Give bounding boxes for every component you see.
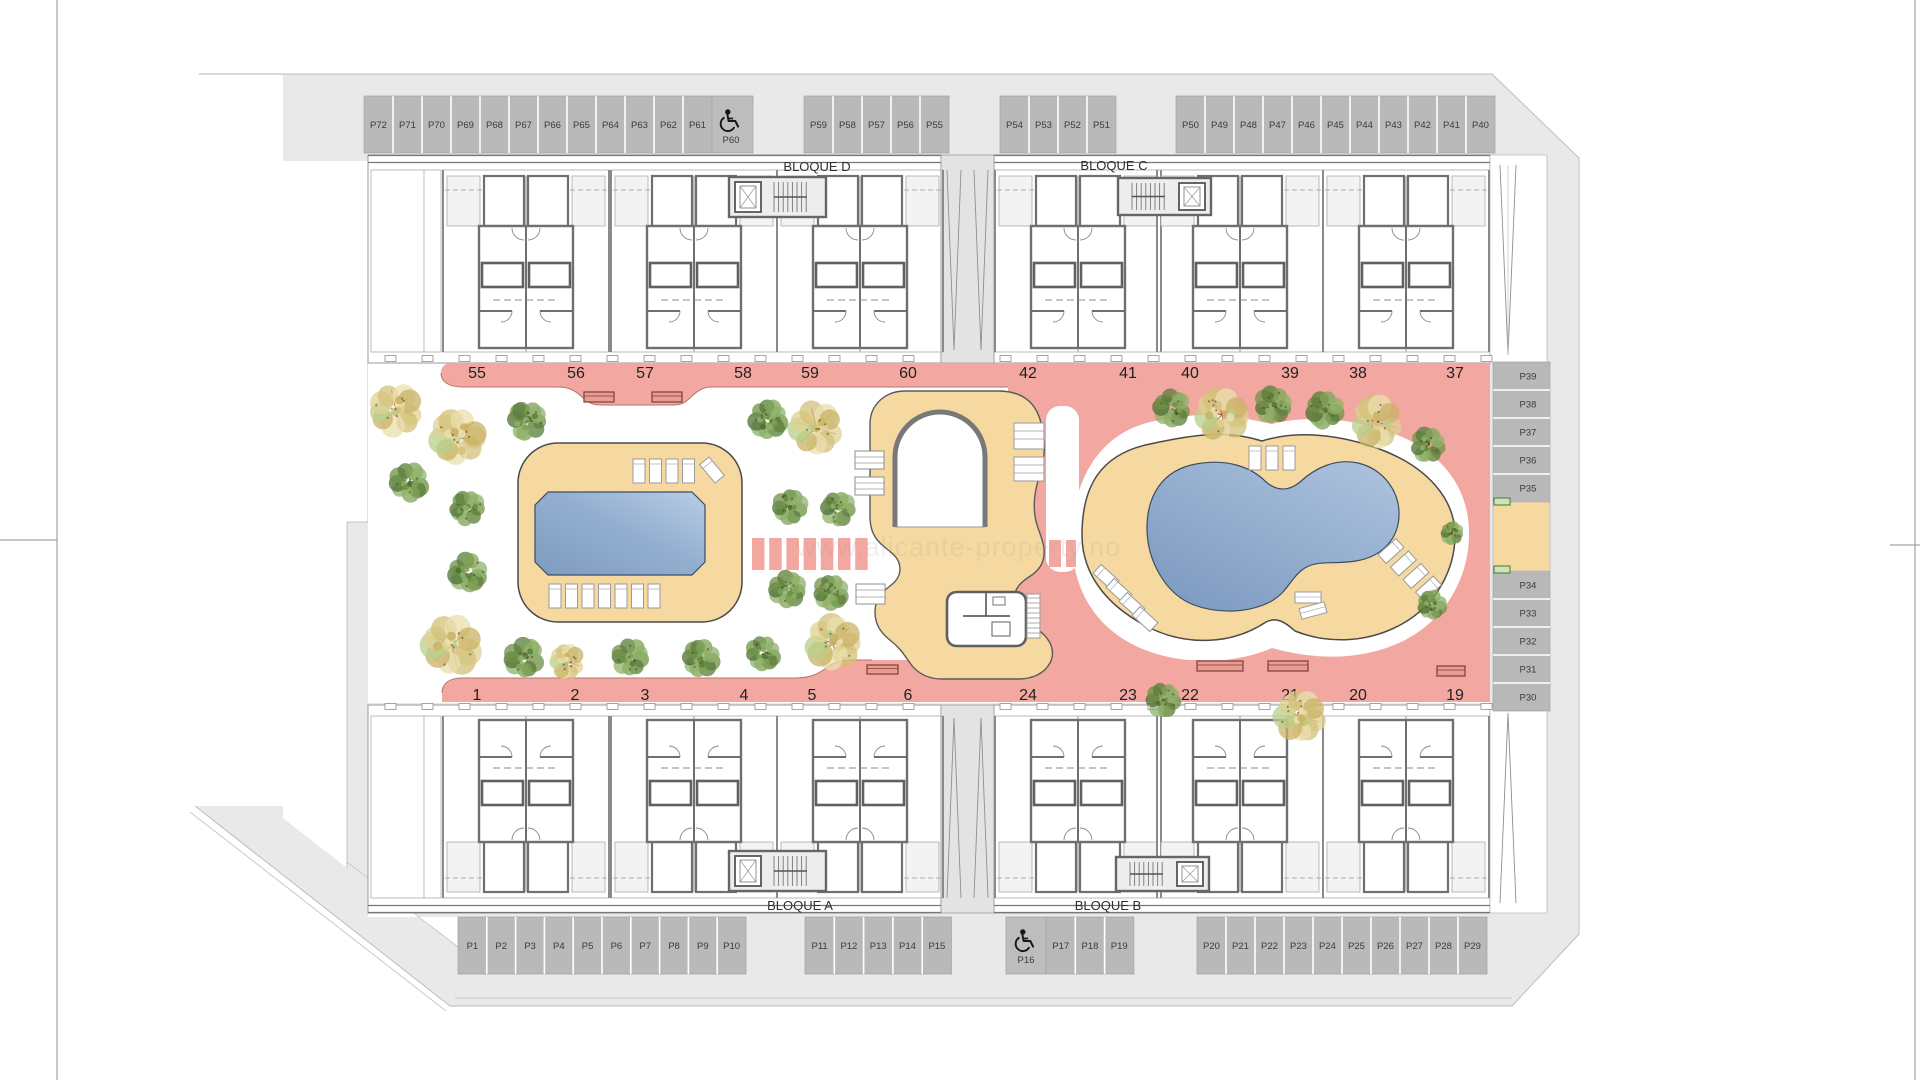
svg-text:P35: P35	[1520, 484, 1537, 495]
svg-text:P13: P13	[870, 941, 887, 952]
svg-text:P1: P1	[467, 941, 479, 952]
svg-text:P48: P48	[1240, 120, 1257, 131]
svg-text:BLOQUE A: BLOQUE A	[767, 898, 833, 913]
svg-text:20: 20	[1349, 687, 1367, 704]
svg-text:P17: P17	[1052, 941, 1069, 952]
svg-text:P69: P69	[457, 120, 474, 131]
svg-text:P51: P51	[1093, 120, 1110, 131]
svg-text:37: 37	[1446, 365, 1464, 382]
svg-text:P58: P58	[839, 120, 856, 131]
svg-text:P9: P9	[697, 941, 709, 952]
svg-text:24: 24	[1019, 687, 1037, 704]
svg-text:P61: P61	[689, 120, 706, 131]
svg-text:P50: P50	[1182, 120, 1199, 131]
svg-text:P33: P33	[1520, 609, 1537, 620]
svg-text:57: 57	[636, 365, 654, 382]
svg-text:P8: P8	[668, 941, 680, 952]
svg-text:P2: P2	[495, 941, 507, 952]
svg-text:P54: P54	[1006, 120, 1023, 131]
svg-text:P19: P19	[1111, 941, 1128, 952]
svg-text:42: 42	[1019, 365, 1037, 382]
svg-text:P62: P62	[660, 120, 677, 131]
svg-text:P49: P49	[1211, 120, 1228, 131]
svg-text:P64: P64	[602, 120, 619, 131]
svg-text:P68: P68	[486, 120, 503, 131]
svg-text:P29: P29	[1464, 941, 1481, 952]
svg-text:1: 1	[473, 687, 482, 704]
svg-text:P36: P36	[1520, 456, 1537, 467]
svg-text:P31: P31	[1520, 665, 1537, 676]
svg-text:60: 60	[899, 365, 917, 382]
svg-text:P70: P70	[428, 120, 445, 131]
svg-text:BLOQUE C: BLOQUE C	[1080, 158, 1147, 173]
svg-text:www.alicante-property.no: www.alicante-property.no	[795, 532, 1121, 562]
svg-text:P15: P15	[928, 941, 945, 952]
svg-text:38: 38	[1349, 365, 1367, 382]
svg-text:P56: P56	[897, 120, 914, 131]
svg-text:P22: P22	[1261, 941, 1278, 952]
svg-text:P26: P26	[1377, 941, 1394, 952]
svg-text:23: 23	[1119, 687, 1137, 704]
svg-text:P6: P6	[611, 941, 623, 952]
svg-text:P27: P27	[1406, 941, 1423, 952]
svg-text:P4: P4	[553, 941, 565, 952]
svg-text:P14: P14	[899, 941, 916, 952]
svg-text:P23: P23	[1290, 941, 1307, 952]
svg-text:P12: P12	[840, 941, 857, 952]
svg-text:P72: P72	[370, 120, 387, 131]
svg-text:P71: P71	[399, 120, 416, 131]
svg-text:22: 22	[1181, 687, 1199, 704]
svg-text:P38: P38	[1520, 400, 1537, 411]
svg-text:P37: P37	[1520, 428, 1537, 439]
svg-text:BLOQUE D: BLOQUE D	[783, 159, 850, 174]
svg-text:55: 55	[468, 365, 486, 382]
svg-text:2: 2	[571, 687, 580, 704]
svg-text:P41: P41	[1443, 120, 1460, 131]
svg-text:P34: P34	[1520, 581, 1537, 592]
svg-text:40: 40	[1181, 365, 1199, 382]
svg-text:6: 6	[904, 687, 913, 704]
svg-text:P65: P65	[573, 120, 590, 131]
svg-text:P5: P5	[582, 941, 594, 952]
svg-text:P7: P7	[639, 941, 651, 952]
svg-text:56: 56	[567, 365, 585, 382]
svg-text:58: 58	[734, 365, 752, 382]
svg-text:41: 41	[1119, 365, 1137, 382]
svg-text:5: 5	[808, 687, 817, 704]
svg-text:P16: P16	[1018, 955, 1035, 966]
svg-text:P39: P39	[1520, 372, 1537, 383]
svg-text:P55: P55	[926, 120, 943, 131]
svg-text:P10: P10	[723, 941, 740, 952]
svg-text:P3: P3	[524, 941, 536, 952]
svg-text:P44: P44	[1356, 120, 1373, 131]
svg-text:P18: P18	[1082, 941, 1099, 952]
svg-text:P57: P57	[868, 120, 885, 131]
svg-text:59: 59	[801, 365, 819, 382]
svg-text:P30: P30	[1520, 693, 1537, 704]
svg-text:P47: P47	[1269, 120, 1286, 131]
svg-text:P25: P25	[1348, 941, 1365, 952]
svg-text:P42: P42	[1414, 120, 1431, 131]
svg-text:19: 19	[1446, 687, 1464, 704]
svg-text:P66: P66	[544, 120, 561, 131]
svg-text:39: 39	[1281, 365, 1299, 382]
svg-text:4: 4	[740, 687, 749, 704]
svg-text:P40: P40	[1472, 120, 1489, 131]
svg-text:P53: P53	[1035, 120, 1052, 131]
svg-text:P67: P67	[515, 120, 532, 131]
svg-text:P24: P24	[1319, 941, 1336, 952]
svg-text:P11: P11	[811, 941, 827, 952]
svg-text:P32: P32	[1520, 637, 1537, 648]
svg-text:P21: P21	[1232, 941, 1249, 952]
svg-text:P46: P46	[1298, 120, 1315, 131]
svg-text:P45: P45	[1327, 120, 1344, 131]
svg-text:P52: P52	[1064, 120, 1081, 131]
svg-text:P20: P20	[1203, 941, 1220, 952]
svg-text:P43: P43	[1385, 120, 1402, 131]
svg-text:P59: P59	[810, 120, 827, 131]
svg-text:P28: P28	[1435, 941, 1452, 952]
svg-text:BLOQUE B: BLOQUE B	[1075, 898, 1141, 913]
svg-text:3: 3	[641, 687, 650, 704]
svg-text:P63: P63	[631, 120, 648, 131]
svg-text:P60: P60	[723, 135, 740, 146]
